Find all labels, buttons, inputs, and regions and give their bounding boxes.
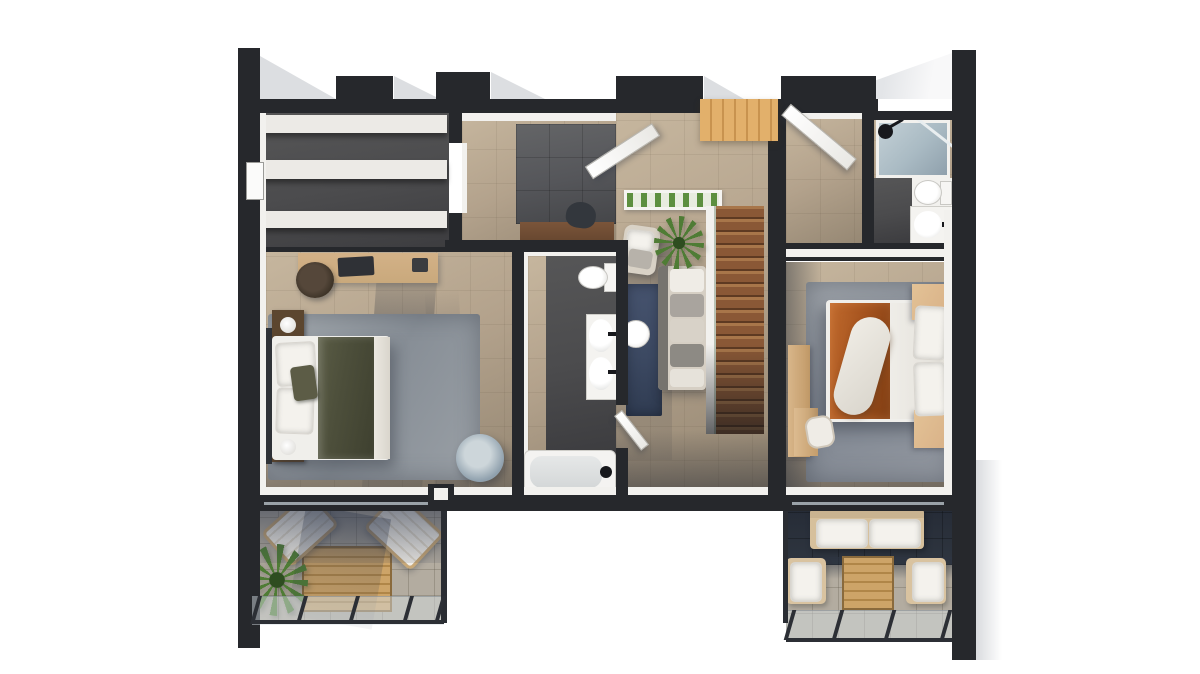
wood-coffee-table (842, 556, 894, 610)
exterior-shadow (976, 460, 1002, 660)
closet-hall-wall (449, 110, 462, 143)
toilet (914, 180, 942, 205)
exterior-corner-wall-face (876, 52, 955, 99)
potted-plant (654, 216, 704, 270)
accent-pillow (290, 364, 318, 401)
glass-balustrade (786, 610, 952, 641)
floor-plan-render (0, 0, 1200, 674)
south-wall-lining (262, 487, 952, 495)
closet-shelf (262, 211, 447, 228)
bathroom-right-wall (616, 448, 628, 495)
walk-in-closet (260, 113, 449, 252)
terrace-door-step-tread (434, 488, 448, 500)
balustrade-rail (786, 638, 952, 642)
glass-door-track (792, 502, 944, 505)
chair-cushion (790, 562, 822, 602)
crenellation-tooth (336, 76, 393, 101)
pillow (913, 305, 948, 361)
sofa-back (658, 266, 668, 390)
ensuite-top-wall (874, 111, 955, 120)
navy-runner-rug (626, 284, 662, 416)
window-sill (246, 162, 264, 200)
pillow (913, 361, 947, 416)
corridor-bath-wall (862, 113, 874, 248)
outer-wall-top (238, 99, 700, 113)
chair-cushion (912, 562, 944, 602)
sofa-cushion (670, 369, 704, 387)
desk-item (412, 258, 428, 272)
sofa-cushion (670, 344, 704, 367)
bathtub-basin (530, 456, 602, 488)
bathroom-top-wall (445, 240, 628, 252)
ensuite-dark-floor (874, 178, 912, 243)
office-chair (296, 262, 334, 298)
closet-shelf (262, 160, 447, 179)
armchair (456, 434, 504, 482)
sofa-cushion (670, 294, 704, 317)
wall-lining (462, 143, 467, 213)
sofa-cushion (816, 519, 868, 548)
bath-faucet (600, 466, 612, 478)
outer-wall-right (952, 50, 976, 660)
bedroom-top-wall-lining (786, 249, 952, 257)
sink-basin (914, 211, 942, 238)
table-lamp (280, 317, 296, 333)
closet-base-edge (260, 247, 449, 252)
sofa-cushion (670, 319, 704, 342)
staircase (716, 206, 764, 434)
duvet-fold (374, 337, 390, 459)
wall-lining (944, 210, 952, 490)
exterior-shadow (704, 76, 744, 99)
olive-blanket (318, 337, 374, 459)
crenellation-tooth (436, 72, 490, 101)
toilet (578, 266, 608, 289)
pillow (627, 248, 654, 270)
outer-wall-left (238, 48, 260, 648)
sofa-cushion (869, 519, 921, 548)
closet-shelf (262, 115, 447, 133)
entry-wood-threshold (700, 99, 778, 141)
wall-lining (462, 113, 616, 121)
sofa-cushion (670, 269, 704, 292)
stair-bedroom-wall (768, 113, 786, 495)
glass-railing (706, 206, 716, 434)
bathroom-right-wall (616, 240, 628, 405)
glass-door-track (264, 502, 440, 505)
exterior-shadow (394, 76, 440, 99)
exterior-shadow (260, 56, 336, 99)
crenellation-tooth (781, 76, 876, 101)
terrace-edge (783, 511, 788, 623)
exterior-shadow (491, 72, 545, 99)
crenellation-tooth (616, 76, 703, 101)
laptop (338, 256, 375, 277)
table-lamp (280, 439, 296, 455)
bathroom-left-wall (512, 252, 524, 495)
balustrade-rail (252, 620, 444, 624)
bedroom-top-wall-edge (786, 257, 952, 261)
